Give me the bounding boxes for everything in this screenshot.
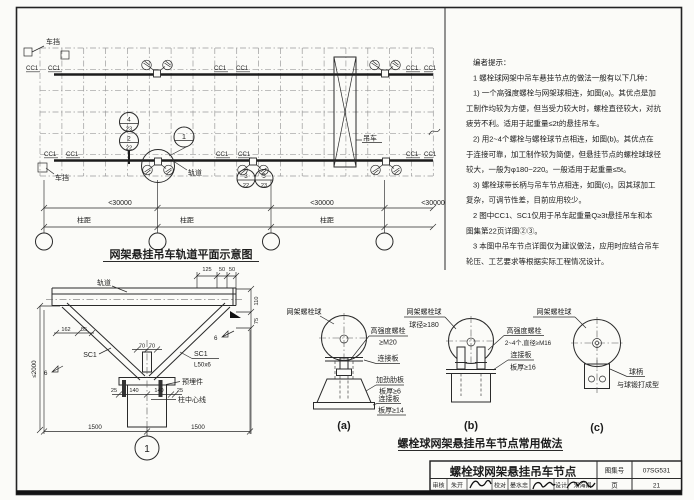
svg-text:140: 140 [129,388,138,394]
angle-size-label: L50x6 [194,362,211,369]
svg-text:≥M20: ≥M20 [379,340,397,347]
svg-text:网架悬挂吊车轨道平面示意图: 网架悬挂吊车轨道平面示意图 [110,247,253,261]
plan-view: 车挡 车挡 CC1 CC1 CC1 CC1 CC1 CC1 CC1 CC1 CC… [24,37,445,262]
svg-text:CC1: CC1 [26,65,39,72]
stem-hole [589,376,595,382]
svg-text:25: 25 [177,388,183,394]
svg-text:162: 162 [61,327,70,333]
ref-bubble-4-23: 4 23 [120,113,139,133]
svg-text:5: 5 [262,173,266,180]
embed-label: 预埋件 [182,377,203,386]
note-line: 3) 螺栓球带长柄与吊车节点相连，如图(c)。因其球加工 [473,179,656,189]
note-line: 疲劳不利。适用于起重量≤2t的悬挂吊车。 [466,118,604,128]
svg-text:125: 125 [202,267,211,273]
sc1-label: SC1 [83,352,97,359]
svg-text:CC1: CC1 [424,65,437,72]
checker-label: 校对 [494,482,506,490]
rail-label: 轨道 [97,278,127,292]
cc1-labels: CC1 CC1 CC1 CC1 CC1 CC1 CC1 CC1 CC1 CC1 … [26,65,437,158]
node-detail-c: 网架螺栓球 球柄 与球锻打成型 (c) [533,307,659,434]
detail-bubble-1: 1 [169,127,194,156]
svg-text:140: 140 [154,388,163,394]
page-number: 21 [653,483,661,490]
car-stop-label: 车挡 [55,173,69,182]
svg-text:CC1: CC1 [424,151,437,158]
svg-text:CC1: CC1 [44,151,57,158]
svg-text:70: 70 [139,344,145,350]
stiffener [317,379,371,403]
svg-text:CC1: CC1 [214,65,227,72]
sheet-title: 螺栓球网架悬挂吊车节点 [450,465,577,479]
svg-text:网架螺栓球: 网架螺栓球 [537,307,572,316]
designer-label: 设计 [555,482,567,490]
atlas-no: 07SG531 [643,468,671,475]
note-line: 工制作均较为方便，但当受力较大时，螺栓直径较大，对抗 [466,103,661,113]
section-bubble-1: 1 [135,427,159,460]
grid-bubble [376,233,393,250]
svg-text:螺栓球网架悬挂吊车节点常用做法: 螺栓球网架悬挂吊车节点常用做法 [398,436,563,450]
title-block: 螺栓球网架悬挂吊车节点 图集号 07SG531 页 21 审核 朱开 校对 晏水… [430,461,682,491]
svg-text:1500: 1500 [88,424,102,431]
nut [337,369,352,376]
car-stop-label: 车挡 [46,37,60,46]
svg-text:50: 50 [219,267,225,273]
centerline-label: 柱中心线 [178,395,206,404]
svg-text:110: 110 [254,297,260,306]
svg-text:连接板: 连接板 [511,350,532,359]
note-line: 编者提示： [473,57,511,67]
svg-text:1: 1 [182,132,186,141]
note-line: 复杂，可调节性差，目前应用较少。 [466,195,586,205]
svg-text:75: 75 [254,318,260,324]
rail-label: 轨道 [174,162,202,178]
svg-text:CC1: CC1 [406,65,419,72]
svg-text:6: 6 [214,335,218,342]
checker-name: 晏水忠 [510,482,528,490]
svg-text:连接板: 连接板 [379,394,400,403]
sc1-label: SC1 [194,351,208,358]
svg-text:板厚≥14: 板厚≥14 [378,406,404,415]
svg-text:CC1: CC1 [236,65,249,72]
svg-text:CC1: CC1 [66,151,79,158]
grid-bubble [149,233,166,250]
grid-bubble [36,233,53,250]
ref-bubble-5-23: 5 23 [255,170,273,190]
svg-text:高强度螺栓: 高强度螺栓 [371,326,406,335]
support-block [452,374,491,403]
reviewer-label: 审核 [432,482,444,490]
svg-text:4: 4 [127,117,131,124]
node-detail-b: 网架螺栓球 球径≥180 高强度螺栓 2~4个,直径≥M16 连接板 板厚≥16… [404,307,552,432]
svg-text:1500: 1500 [191,424,205,431]
note-line: 图集第22页详图②③。 [466,225,542,235]
svg-text:吊车: 吊车 [363,134,377,143]
beam [46,288,242,306]
svg-text:25: 25 [111,388,117,394]
svg-text:6: 6 [44,370,48,377]
section-detail-1: 轨道 125 50 50 110 75 [31,267,260,460]
crane-label: 吊车 [356,134,382,143]
note-line: 较大，一般为φ180~220。一般适用于起重量≤5t。 [466,164,631,174]
svg-text:轨道: 轨道 [97,278,111,287]
bay-label: 柱距 [180,216,194,225]
section-dimensions: 125 50 50 110 75 ≤2000 162 85 70 70 25 1… [31,267,260,435]
note-line: 轮压、工艺要求等根据实际工程情况设计。 [466,256,609,266]
span-dim: <30000 [108,200,132,207]
note-line: 3 本图中吊车节点详图仅为建议做法，应用时应结合吊车 [473,241,660,251]
note-line: 1 螺栓球网架中吊车悬挂节点的做法一般有以下几种： [473,72,652,82]
svg-text:CC1: CC1 [216,151,229,158]
bay-label: 柱距 [320,216,334,225]
svg-text:CC1: CC1 [406,151,419,158]
svg-text:85: 85 [81,327,87,333]
span-dim: <30000 [310,200,334,207]
stem-hole [600,376,606,382]
svg-text:球柄: 球柄 [629,367,643,376]
svg-text:网架螺栓球: 网架螺栓球 [407,307,442,316]
svg-text:板厚≥6: 板厚≥6 [379,387,401,396]
bolt [457,347,465,369]
caption-a: (a) [337,420,351,432]
svg-text:球径≥180: 球径≥180 [409,320,439,329]
svg-text:≤2000: ≤2000 [31,360,38,378]
svg-text:2: 2 [127,136,131,143]
svg-text:2~4个,直径≥M16: 2~4个,直径≥M16 [505,339,552,347]
ref-bubble-3-22: 3 22 [237,170,255,190]
base-plate [314,403,375,410]
svg-text:1: 1 [144,444,150,455]
note-line: 1) 一个高强度螺栓与网架球相连，如图(a)。其优点是加 [473,88,656,98]
plan-title: 网架悬挂吊车轨道平面示意图 [103,247,259,262]
column-head [119,340,175,436]
svg-text:70: 70 [149,344,155,350]
car-stop-bottom: 车挡 [38,163,69,182]
bay-label: 柱距 [77,216,91,225]
details-title: 螺栓球网架悬挂吊车节点常用做法 [398,436,564,451]
svg-text:23: 23 [261,183,267,189]
svg-text:与球锻打成型: 与球锻打成型 [617,380,659,389]
note-line: 于连接可靠，加工制作较为简便，但悬挂节点的螺栓球球径 [466,149,661,159]
span-dim: <30000 [421,200,445,207]
svg-text:加劲肋板: 加劲肋板 [376,375,404,384]
grid-bubble [263,233,280,250]
editor-notes: 编者提示： 1 螺栓球网架中吊车悬挂节点的做法一般有以下几种： 1) 一个高强度… [466,57,661,266]
svg-text:连接板: 连接板 [378,354,399,363]
node-detail-a: 网架螺栓球 高强度螺栓 ≥M20 连接板 加劲肋板 板厚≥6 连接板 板厚≥14… [287,307,409,432]
note-line: 2 图中CC1、SC1仅用于吊车起重量Q≥3t悬挂吊车和本 [473,210,653,220]
note-line: 2) 用2~4个螺栓与螺栓球节点相连，如图(b)。其优点在 [473,134,654,144]
svg-text:3: 3 [244,173,248,180]
caption-b: (b) [464,420,478,432]
svg-text:高强度螺栓: 高强度螺栓 [507,326,542,335]
svg-text:50: 50 [229,267,235,273]
atlas-no-label: 图集号 [605,466,625,475]
drawing-sheet: 车挡 车挡 CC1 CC1 CC1 CC1 CC1 CC1 CC1 CC1 CC… [0,0,694,500]
svg-text:CC1: CC1 [238,151,251,158]
svg-text:CC1: CC1 [48,65,61,72]
caption-c: (c) [590,422,604,434]
svg-text:轨道: 轨道 [188,168,202,177]
ref-bubble-2-22: 2 22 [120,132,139,165]
plan-dimensions: <30000 <30000 <30000 柱距 柱距 柱距 [36,180,445,250]
svg-text:板厚≥16: 板厚≥16 [510,363,536,372]
reviewer-name: 朱开 [451,482,463,490]
break-mark [429,129,440,135]
page-label: 页 [611,482,618,490]
svg-text:22: 22 [243,183,249,189]
bolt [477,347,485,369]
svg-text:网架螺栓球: 网架螺栓球 [287,307,322,316]
